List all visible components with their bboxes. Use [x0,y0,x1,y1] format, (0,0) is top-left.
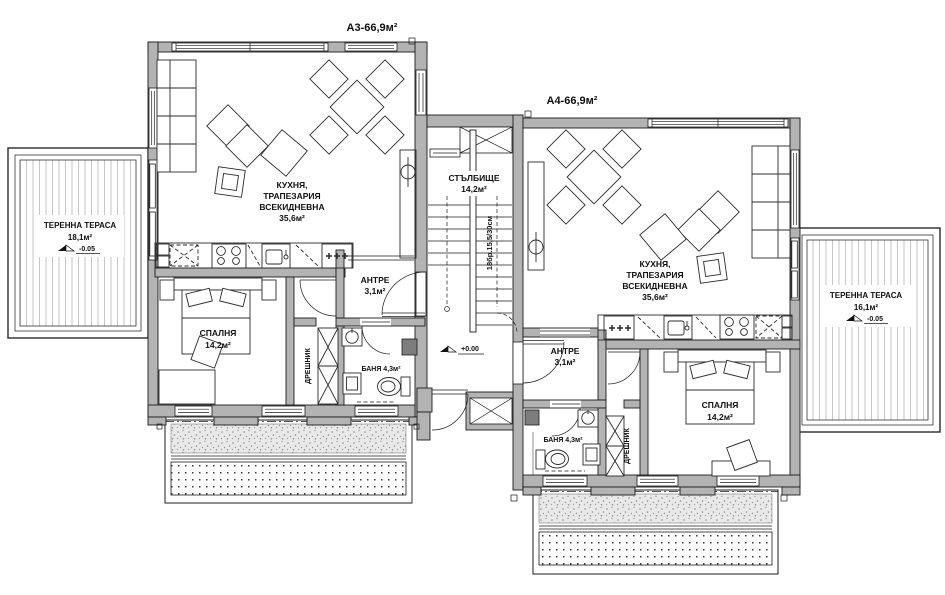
room-label-a3-bedroom-area: 14,2м² [205,340,231,350]
terrace-left-level: -0.05 [79,246,95,253]
room-label-a3-antre: АНТРЕ [361,275,390,285]
bath-door-a3 [360,319,391,355]
wardrobe-a4 [606,416,624,476]
stairwell: 18бр.15,5/30см СТЪЛБИЩЕ 14,2м² +0.00 [417,115,523,490]
terrace-right-area: 16,1м² [854,303,878,312]
window-a3-top-2 [345,43,397,51]
window-a3-left [149,88,157,148]
stair-label-area: 14,2м² [461,184,487,194]
shower-panel-a4 [525,410,539,425]
stair-label: СТЪЛБИЩЕ [448,173,499,183]
bath-door-a4 [550,401,581,437]
room-label-a4-antre-area: 3,1м² [555,357,576,367]
room-label-a3-living-area: 35,6м² [279,213,305,223]
room-label-a4-bedroom-area: 14,2м² [707,412,733,422]
room-label-a3-antre-area: 3,1м² [365,286,386,296]
terrace-right-level: -0.05 [867,316,883,323]
room-label-a4-living-1: КУХНЯ, [640,259,671,269]
window-a4-bottom-2 [717,476,759,486]
toilet-a4 [536,450,569,469]
toilet-a3 [378,377,411,396]
window-a3-bottom-1 [175,406,212,416]
terrace-left: ТЕРЕННА ТЕРАСА 18,1м² -0.05 [8,148,148,338]
stair-steps-note: 18бр.15,5/30см [485,215,494,270]
floor-plan-drawing: ТЕРЕННА ТЕРАСА 18,1м² -0.05 ТЕРЕННА ТЕРА… [0,0,945,595]
entrance-door [432,390,468,430]
shower-panel-a3 [402,339,417,355]
floor-plan: ТЕРЕННА ТЕРАСА 18,1м² -0.05 ТЕРЕННА ТЕРА… [0,0,945,595]
dining-set-a4 [547,130,641,224]
room-label-a3-bedroom: СПАЛНЯ [200,328,237,338]
wardrobe-a3 [318,328,338,404]
kitchen-counter-a3 [155,243,353,268]
sofa-a3 [157,60,196,172]
bathroom-fixtures-a3 [342,328,417,396]
window-a3-stair-side [416,70,426,115]
room-label-a4-living-area: 35,6м² [642,292,668,302]
stair-top-window [430,149,460,157]
sofa-a4 [752,146,790,258]
window-a4-top [648,119,788,127]
window-a4-bottom-1 [637,476,678,486]
radiator-a4 [528,162,544,270]
room-label-a4-bedroom: СПАЛНЯ [702,400,739,410]
room-label-a4-closet: ДРЕШНИК [624,427,631,463]
stair-level: +0.00 [461,346,479,353]
dishwasher-icon-a3 [326,253,348,259]
desk-a4 [712,440,770,476]
room-label-a3-living-1: КУХНЯ, [277,180,308,190]
room-label-a4-living-3: ВСЕКИДНЕВНА [622,281,687,291]
room-label-a4-living-2: ТРАПЕЗАРИЯ [626,270,683,280]
apartment-a3-title: А3-66,9м² [347,22,398,34]
hall-door-a4 [608,352,640,384]
apartment-a4-title: А4-66,9м² [547,95,598,107]
terrace-left-name: ТЕРЕННА ТЕРАСА [44,221,116,230]
shaft-top [460,127,512,153]
room-label-a3-bath: БАНЯ 4,3м² [361,366,401,373]
room-label-a3-living-2: ТРАПЕЗАРИЯ [263,191,320,201]
terrace-right: ТЕРЕННА ТЕРАСА 16,1м² -0.05 [795,228,940,432]
room-label-a4-bath: БАНЯ 4,3м² [543,437,583,444]
room-label-a4-antre: АНТРЕ [551,346,580,356]
dining-set-a3 [310,60,404,154]
room-label-a3-living-3: ВСЕКИДНЕВНА [259,202,324,212]
window-a3-top-1 [172,43,328,51]
hall-door-a3 [300,280,336,316]
planter-left [165,420,412,503]
dishwasher-icon-a4 [609,325,631,331]
window-a3-bottom-2 [262,406,305,416]
room-label-a3-closet: ДРЕШНИК [305,347,312,383]
terrace-right-name: ТЕРЕННА ТЕРАСА [830,291,902,300]
window-a3-bottom-bath [355,402,398,416]
level-mark-stair: +0.00 [440,346,484,354]
window-a4-right [791,150,799,228]
entrance-vestibule [417,388,513,440]
radiator-a3 [400,150,416,258]
terrace-door-a4 [791,238,799,300]
planter-right [533,490,778,574]
terrace-left-area: 18,1м² [68,233,92,242]
shaft-bottom [470,398,512,424]
window-a4-bottom-bath [543,471,587,486]
apartment-a4-furniture [525,130,792,476]
stairs: 18бр.15,5/30см [428,130,517,333]
kitchen-counter-a4 [598,315,792,340]
